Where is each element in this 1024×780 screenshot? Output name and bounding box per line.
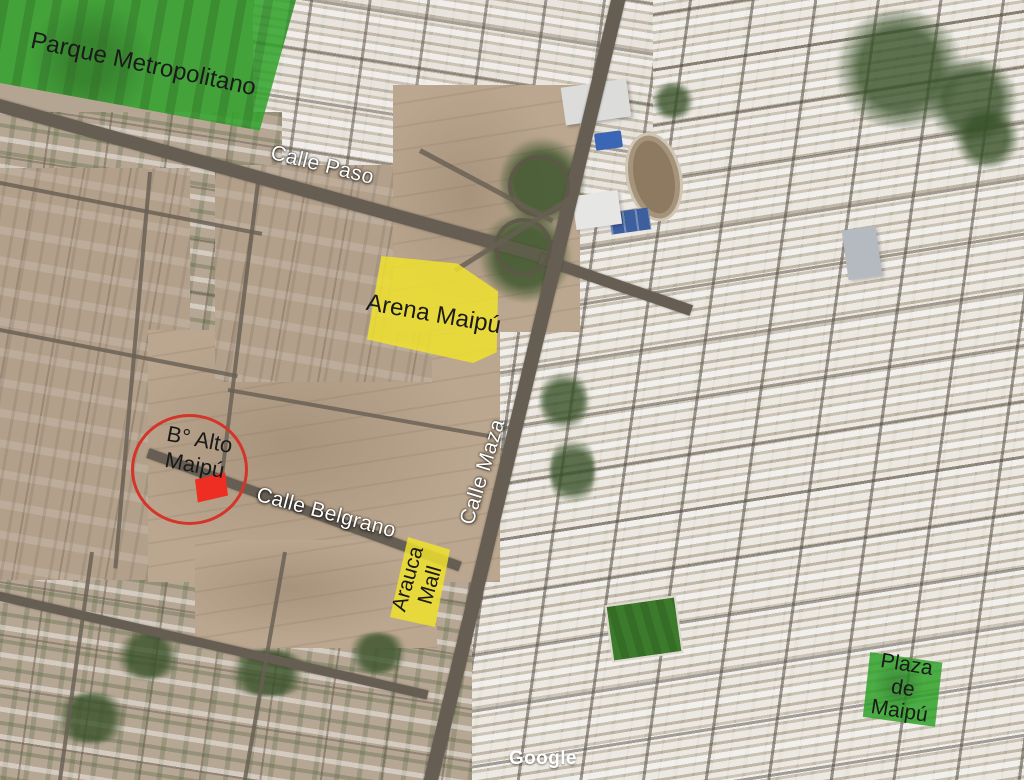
label-plaza-de-maipu: Plaza de Maipú (869, 649, 937, 728)
soccer-field (604, 595, 683, 662)
interchange-loop-ramp (508, 155, 570, 217)
vegetation-patch (345, 633, 411, 673)
vegetation-patch (952, 108, 1022, 168)
vegetation-patch (540, 368, 588, 434)
warehouse-building (842, 226, 883, 280)
vegetation-patch (550, 433, 595, 509)
vegetation-patch (50, 693, 132, 743)
satellite-map-canvas[interactable]: Parque Metropolitano Calle Paso Arena Ma… (0, 0, 1024, 780)
google-logo-watermark[interactable]: Google (509, 748, 577, 770)
warehouse-building (572, 190, 622, 230)
vegetation-patch (650, 83, 696, 119)
